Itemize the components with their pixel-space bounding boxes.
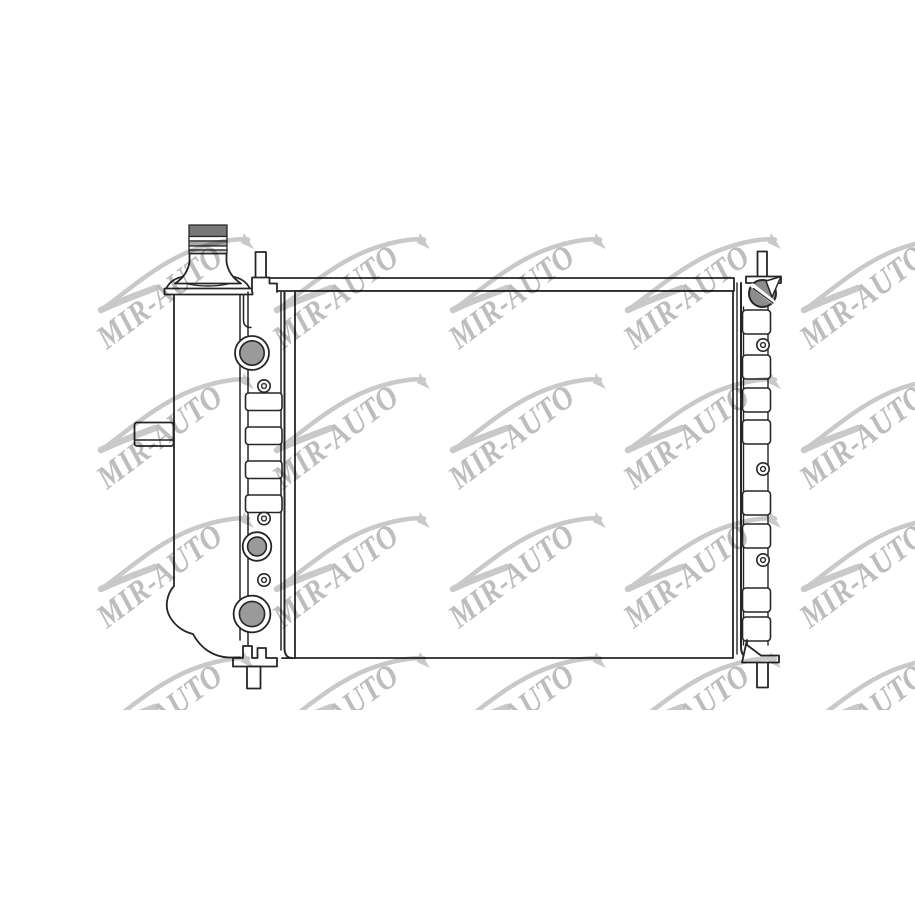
filler-cap-stripes <box>189 225 227 254</box>
left-ladder-segments <box>246 393 283 513</box>
tank-mounting-tab <box>135 423 174 447</box>
filler-neck <box>175 254 241 284</box>
radiator-core <box>282 283 737 658</box>
top-left-mounting-pin <box>252 252 277 292</box>
core-top-bar <box>257 278 734 291</box>
right-ladder-segments <box>743 310 771 641</box>
bottom-right-bracket <box>742 640 779 688</box>
radiator-line-drawing <box>0 0 915 915</box>
product-image-radiator: MIR-AUTOMIR-AUTOMIR-AUTOMIR-AUTOMIR-AUTO… <box>0 0 915 915</box>
left-ladder-strip <box>234 292 292 658</box>
right-ladder-strip <box>741 283 771 658</box>
